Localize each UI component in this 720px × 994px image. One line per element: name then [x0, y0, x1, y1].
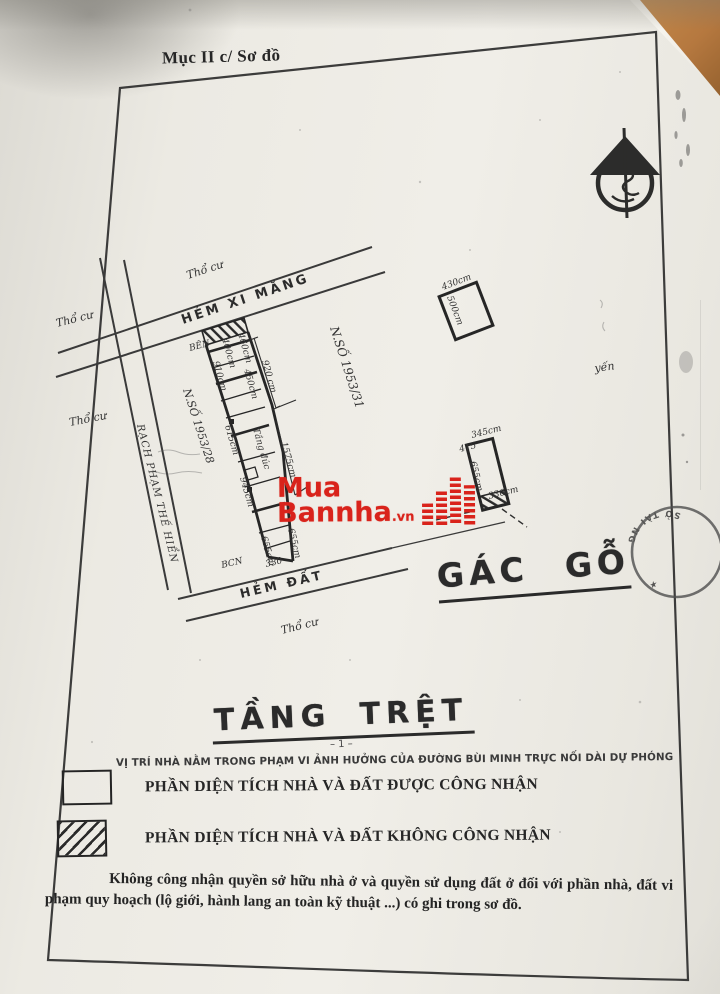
- section-label: Mục II c/ Sơ đồ: [162, 45, 281, 68]
- ink-bleed-marks: [674, 90, 693, 463]
- floor-title-mark: – 1 –: [330, 739, 353, 751]
- watermark-logo: Mua Bannha.vn: [277, 473, 476, 527]
- legend-label-not-recognized: PHẦN DIỆN TÍCH NHÀ VÀ ĐẤT KHÔNG CÔNG NHẬ…: [145, 827, 551, 848]
- land-use-label: Thổ cư: [68, 409, 109, 429]
- legend-symbol-recognized: [62, 770, 113, 806]
- neighbour-building-1: 430cm 500cm: [439, 272, 493, 339]
- watermark-logo-text: Mua Bannha.vn: [277, 476, 415, 527]
- land-use-label: Thổ cư: [280, 615, 321, 637]
- building2-note-label: 415: [457, 441, 477, 455]
- logo-buildings-icon: [422, 473, 475, 525]
- dim-945: 945cm: [237, 476, 255, 508]
- logo-line2: Bannha.vn: [277, 501, 415, 527]
- stamp-star: ★: [648, 579, 660, 591]
- footnote-paragraph: Không công nhận quyền sở hữu nhà ở và qu…: [45, 868, 673, 918]
- handwritten-note: yến: [593, 359, 616, 375]
- parcel-number-left: N.SỐ 1953/28: [180, 385, 219, 465]
- land-use-label: Thổ cư: [185, 257, 226, 281]
- logo-tld: .vn: [392, 510, 415, 525]
- dim-655-right: 655cm: [285, 527, 302, 559]
- scanned-document-photo: 430cm 500cm 345cm 415 655cm 330cm HẺM XI…: [0, 0, 720, 994]
- legend-label-recognized: PHẦN DIỆN TÍCH NHÀ VÀ ĐẤT ĐƯỢC CÔNG NHẬN: [145, 776, 538, 797]
- dim-910: 910cm: [210, 360, 228, 392]
- land-use-label: Thổ cư: [55, 308, 96, 330]
- note-tang-duc: Tầng đúc: [250, 427, 272, 471]
- note-bcn: BCN: [219, 556, 244, 571]
- building2-width-label: 345cm: [470, 424, 502, 441]
- street-label-hem-dat: HẺM ĐẤT: [238, 565, 325, 601]
- north-arrow-icon: [590, 128, 660, 218]
- legend-symbol-not-recognized: [57, 820, 108, 858]
- parcel-number-right: N.SỐ 1953/31: [327, 323, 370, 410]
